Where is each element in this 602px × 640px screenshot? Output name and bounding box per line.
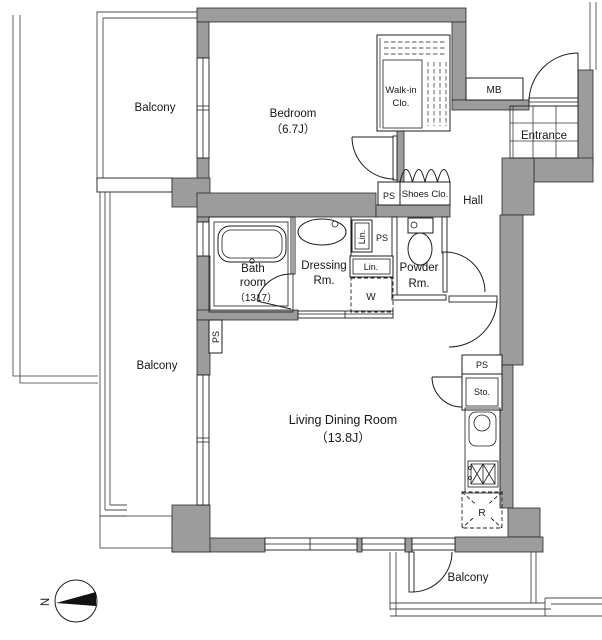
kitchen — [462, 355, 502, 528]
ps-kitchen-label: PS — [476, 360, 488, 370]
balcony-door-threshold — [412, 538, 455, 550]
compass — [55, 580, 97, 622]
dressing-label2: Rm. — [313, 275, 334, 287]
dressing-label: Dressing — [301, 260, 346, 272]
mb-label: MB — [487, 85, 502, 96]
fridge-label: R — [478, 508, 485, 519]
ps-hall-label: PS — [383, 191, 395, 201]
stove — [468, 461, 498, 487]
dressing-sliding-door — [298, 311, 393, 318]
living-dining-label: Living Dining Room — [289, 413, 397, 427]
entrance-label: Entrance — [521, 130, 567, 142]
bath-label2: room — [240, 277, 266, 289]
wash-basin — [298, 219, 346, 245]
bedroom-door-threshold — [393, 136, 397, 180]
bedroom-label: Bedroom — [270, 108, 317, 120]
bath-label: Bath — [241, 263, 265, 275]
balcony-door-arc — [409, 552, 452, 592]
bedroom-size-label: （6.7J） — [271, 123, 316, 136]
kitchen-sink — [469, 412, 496, 446]
living-balcony-window-left — [197, 375, 209, 505]
washer-label: W — [366, 292, 376, 303]
living-dining-size-label: （13.8J） — [315, 431, 371, 445]
balcony-divider — [97, 178, 172, 192]
ps-left-label: PS — [211, 331, 221, 343]
living-bottom-window-1 — [265, 538, 357, 550]
ps-dressing-label: PS — [376, 233, 388, 243]
compass-needle-icon — [56, 592, 96, 606]
powder-label2: Rm. — [408, 278, 429, 290]
bath-size-label: （1317） — [235, 292, 277, 304]
bedroom-balcony-window — [197, 58, 209, 158]
floor-plan-svg: Balcony Bedroom （6.7J） Walk-in Clo. MB E… — [0, 0, 602, 640]
shoes-closet-label: Shoes Clo. — [402, 189, 448, 200]
living-bottom-window-2 — [362, 538, 405, 550]
bath-window — [197, 222, 209, 256]
toilet — [408, 218, 433, 265]
balcony-bottom-railing — [390, 552, 602, 616]
walkin-closet-label2: Clo. — [393, 98, 410, 109]
floor-plan: Balcony Bedroom （6.7J） Walk-in Clo. MB E… — [0, 0, 602, 640]
entrance-door-arc — [529, 53, 578, 102]
entrance-threshold — [529, 98, 578, 106]
hall-label: Hall — [463, 195, 483, 207]
walkin-closet — [377, 35, 450, 131]
shoes-closet-bifold-doors — [400, 170, 450, 183]
linen-lower-label: Lin. — [364, 262, 379, 272]
storage-label: Sto. — [474, 387, 490, 397]
storage-door-arc — [432, 377, 462, 407]
balcony-left-label: Balcony — [137, 360, 178, 372]
linen-upper-label: Lin. — [357, 230, 367, 245]
north-label: N — [40, 598, 52, 606]
living-door-arc — [449, 296, 497, 347]
bedroom-door-arc — [352, 137, 394, 179]
balcony-top-label: Balcony — [135, 102, 176, 114]
powder-door-arc — [443, 252, 485, 292]
walkin-closet-label: Walk-in — [385, 85, 416, 96]
balcony-bottom-label: Balcony — [448, 572, 489, 584]
powder-label: Powder — [400, 262, 439, 274]
